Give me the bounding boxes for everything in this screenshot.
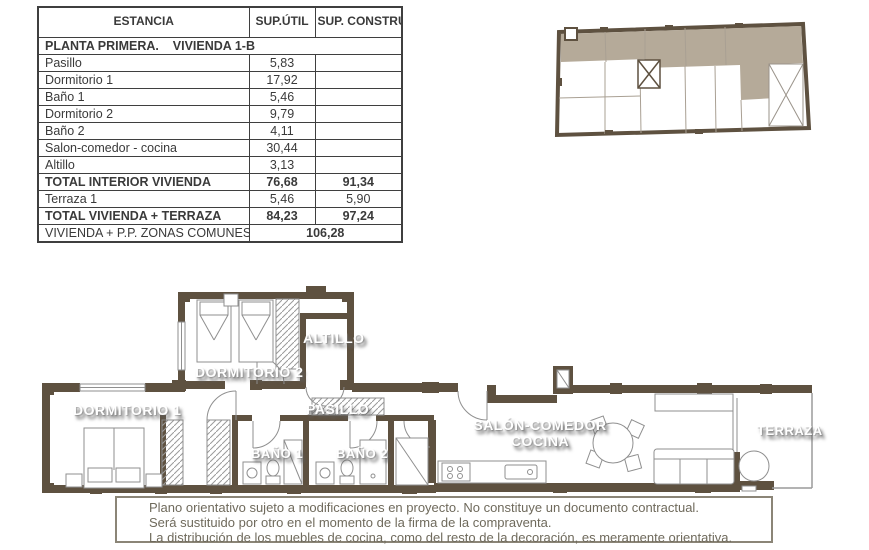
cell-room-name: Terraza 1 <box>38 190 249 207</box>
label-terraza: TERRAZA <box>757 423 823 438</box>
table-row: Dormitorio 1 17,92 <box>38 71 402 88</box>
table-row-total-interior: TOTAL INTERIOR VIVIENDA 76,68 91,34 <box>38 173 402 190</box>
key-plan <box>545 8 817 140</box>
label-dormitorio-2: DORMITORIO 2 <box>195 364 303 380</box>
cell-room-name: TOTAL VIVIENDA + TERRAZA <box>38 207 249 224</box>
tv-unit-symbol <box>655 394 733 411</box>
header-estancia: ESTANCIA <box>38 7 249 37</box>
cell-room-name: Baño 2 <box>38 122 249 139</box>
cell-sup-built <box>315 54 402 71</box>
key-plan-stairwell <box>638 60 660 88</box>
double-bed-symbol <box>66 428 162 488</box>
floor-plan-sheet: ESTANCIA SUP.ÚTIL SUP. CONSTRUIDA PLANTA… <box>0 0 869 550</box>
cell-sup-util: 5,46 <box>249 190 315 207</box>
cell-room-name: VIVIENDA + P.P. ZONAS COMUNES <box>38 224 249 242</box>
area-table: ESTANCIA SUP.ÚTIL SUP. CONSTRUIDA PLANTA… <box>37 6 403 243</box>
disclaimer-line-1: Plano orientativo sujeto a modificacione… <box>149 500 765 515</box>
floor-plan <box>0 282 869 512</box>
table-header-row: ESTANCIA SUP.ÚTIL SUP. CONSTRUIDA <box>38 7 402 37</box>
cell-sup-util: 17,92 <box>249 71 315 88</box>
cell-sup-util: 30,44 <box>249 139 315 156</box>
cell-sup-built <box>315 156 402 173</box>
cell-sup-built <box>315 139 402 156</box>
label-altillo: ALTILLO <box>303 330 365 346</box>
label-salon-line2: COCINA <box>450 433 630 449</box>
table-row: Baño 2 4,11 <box>38 122 402 139</box>
cell-room-name: Pasillo <box>38 54 249 71</box>
table-footer-row: VIVIENDA + P.P. ZONAS COMUNES 106,28 <box>38 224 402 242</box>
cell-sup-util: 3,13 <box>249 156 315 173</box>
table-row-total-vivienda: TOTAL VIVIENDA + TERRAZA 84,23 97,24 <box>38 207 402 224</box>
cell-room-name: Dormitorio 1 <box>38 71 249 88</box>
table-section-row: PLANTA PRIMERA. VIVIENDA 1-B <box>38 37 402 54</box>
table-row: Salon-comedor - cocina 30,44 <box>38 139 402 156</box>
table-row: Dormitorio 2 9,79 <box>38 105 402 122</box>
table-row: Pasillo 5,83 <box>38 54 402 71</box>
label-bano-2: BAÑO 2 <box>336 446 388 461</box>
label-bano-1: BAÑO 1 <box>251 446 303 461</box>
cell-room-name: Dormitorio 2 <box>38 105 249 122</box>
cell-total-value: 106,28 <box>249 224 402 242</box>
cell-sup-built: 5,90 <box>315 190 402 207</box>
cell-sup-util: 5,83 <box>249 54 315 71</box>
cell-room-name: TOTAL INTERIOR VIVIENDA <box>38 173 249 190</box>
label-pasillo: PASILLO <box>306 401 369 417</box>
disclaimer-line-2: Será sustituido por otro en el momento d… <box>149 515 765 530</box>
cell-sup-util: 84,23 <box>249 207 315 224</box>
disclaimer-line-3: La distribución de los muebles de cocina… <box>149 530 765 545</box>
key-plan-building <box>557 23 809 135</box>
cell-sup-util: 5,46 <box>249 88 315 105</box>
key-plan-patio <box>769 64 803 126</box>
cell-sup-built: 97,24 <box>315 207 402 224</box>
cell-sup-built <box>315 105 402 122</box>
cell-room-name: Baño 1 <box>38 88 249 105</box>
cell-sup-built: 91,34 <box>315 173 402 190</box>
section-title: PLANTA PRIMERA. VIVIENDA 1-B <box>38 37 402 54</box>
cell-room-name: Altillo <box>38 156 249 173</box>
cell-sup-built <box>315 88 402 105</box>
disclaimer-box: Plano orientativo sujeto a modificacione… <box>115 496 773 543</box>
header-sup-util: SUP.ÚTIL <box>249 7 315 37</box>
kitchen-counter-symbol <box>438 461 546 483</box>
sofa-symbol <box>654 449 734 484</box>
cell-sup-util: 9,79 <box>249 105 315 122</box>
label-salon-comedor-cocina: SALÓN-COMEDOR COCINA <box>450 417 630 449</box>
header-sup-construida: SUP. CONSTRUIDA <box>315 7 402 37</box>
cell-room-name: Salon-comedor - cocina <box>38 139 249 156</box>
twin-beds-symbol <box>197 294 273 362</box>
table-row: Terraza 1 5,46 5,90 <box>38 190 402 207</box>
cell-sup-built <box>315 71 402 88</box>
label-salon-line1: SALÓN-COMEDOR <box>450 417 630 433</box>
label-dormitorio-1: DORMITORIO 1 <box>73 402 181 418</box>
cell-sup-util: 4,11 <box>249 122 315 139</box>
cell-sup-built <box>315 122 402 139</box>
table-row: Altillo 3,13 <box>38 156 402 173</box>
cell-sup-util: 76,68 <box>249 173 315 190</box>
terrace-boundary <box>772 393 812 488</box>
table-row: Baño 1 5,46 <box>38 88 402 105</box>
